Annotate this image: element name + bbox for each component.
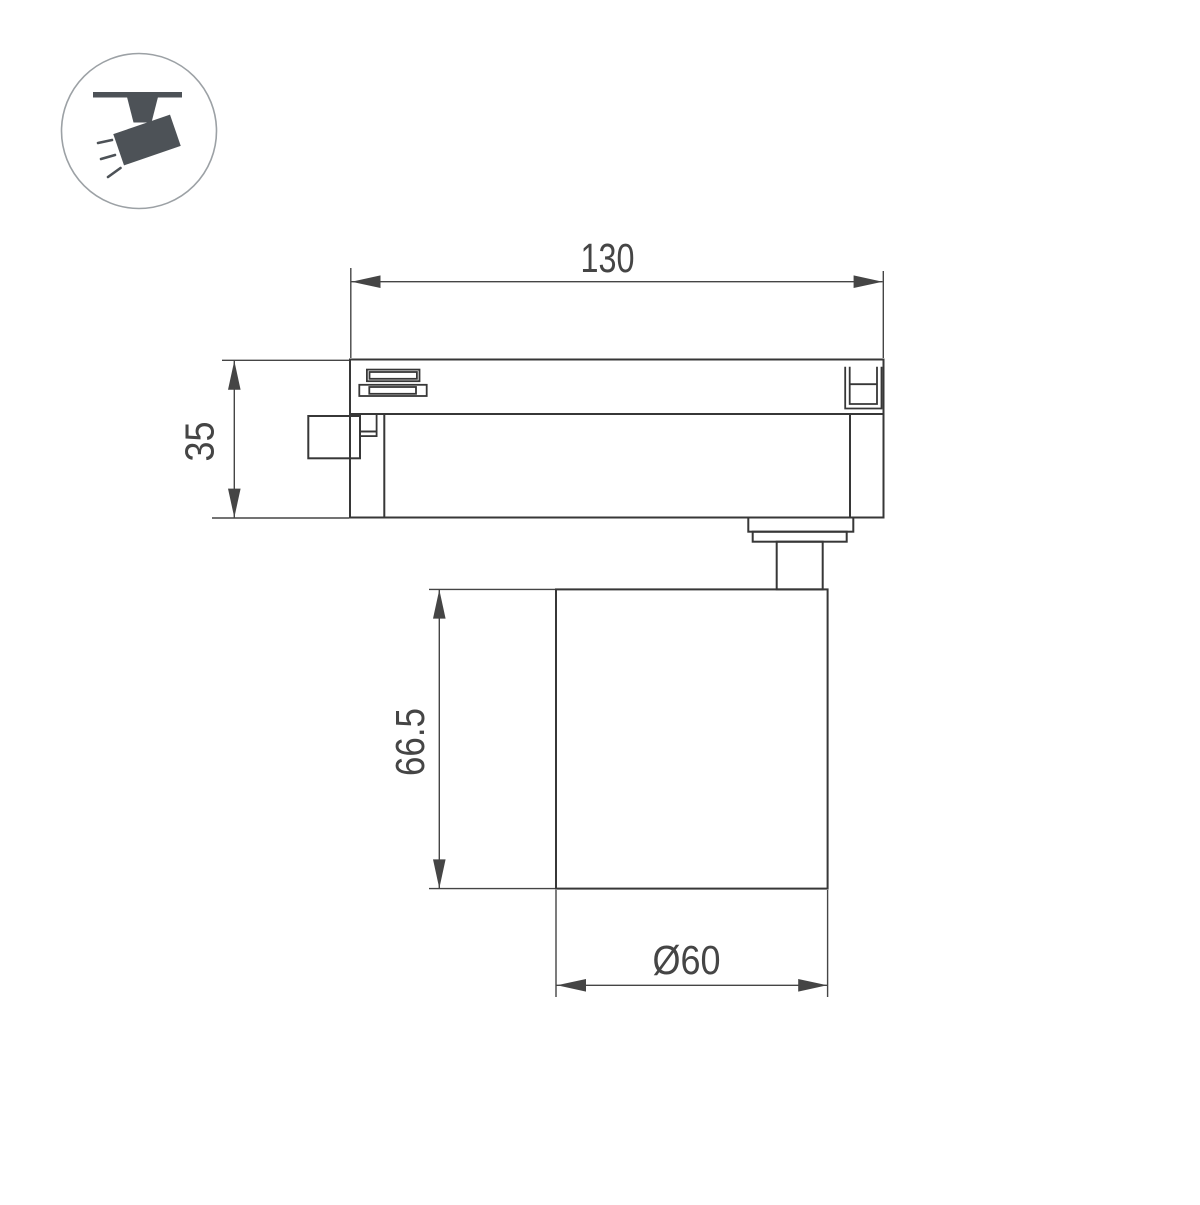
drawing-page: 130 35 66.5 Ø60 — [0, 0, 1200, 1200]
arrowhead-down — [228, 489, 241, 518]
adapter-contacts — [359, 370, 426, 396]
adapter-mount-bracket — [845, 367, 881, 409]
swivel-stem — [777, 542, 823, 590]
adapter-latch-notch-step — [360, 432, 377, 437]
adapter-latch-tab — [308, 416, 360, 458]
dimension-lamp-body-diameter: Ø60 — [556, 890, 828, 997]
arrowhead-left — [352, 275, 381, 288]
dimension-label-lamp-body-diameter: Ø60 — [653, 937, 721, 983]
adapter-latch-notch — [360, 414, 377, 432]
arrowhead-up — [433, 590, 446, 619]
fixture-outline — [308, 360, 883, 889]
icon-track-bar — [93, 92, 182, 98]
adapter-main-body — [350, 414, 884, 518]
adapter-top-strip — [350, 360, 884, 415]
arrowhead-right — [854, 275, 883, 288]
flange-step-1 — [748, 518, 853, 532]
dimension-lamp-body-height: 66.5 — [387, 589, 555, 888]
dimension-label-track-adapter-width: 130 — [581, 235, 635, 281]
lamp-body — [556, 589, 828, 888]
dimension-label-lamp-body-height: 66.5 — [387, 708, 433, 776]
arrowhead-left — [557, 979, 586, 992]
arrowhead-up — [228, 361, 241, 390]
technical-drawing-svg: 130 35 66.5 Ø60 — [0, 0, 1200, 1200]
dimension-track-adapter-width: 130 — [351, 235, 884, 358]
arrowhead-down — [433, 859, 446, 888]
dimension-track-adapter-height: 35 — [177, 360, 350, 518]
track-spotlight-icon — [62, 54, 217, 209]
dimension-label-track-adapter-height: 35 — [177, 422, 223, 462]
arrowhead-right — [798, 979, 827, 992]
flange-step-2 — [753, 532, 847, 542]
